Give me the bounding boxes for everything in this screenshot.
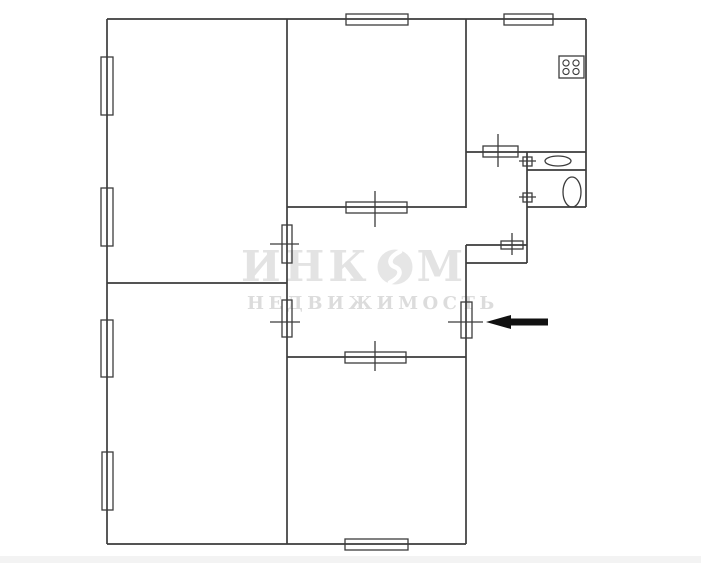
sink-icon <box>545 156 571 166</box>
stove-burner-icon <box>573 68 579 74</box>
stove-icon <box>559 56 584 78</box>
stove-burner-icon <box>573 60 579 66</box>
floor-plan-page: ИНК М НЕДВИЖИМОСТЬ <box>0 0 701 563</box>
stove-burner-icon <box>563 60 569 66</box>
stove-burner-icon <box>563 68 569 74</box>
floor-plan-svg <box>0 0 701 563</box>
entrance-arrow-icon <box>486 315 548 329</box>
toilet-icon <box>563 177 581 207</box>
